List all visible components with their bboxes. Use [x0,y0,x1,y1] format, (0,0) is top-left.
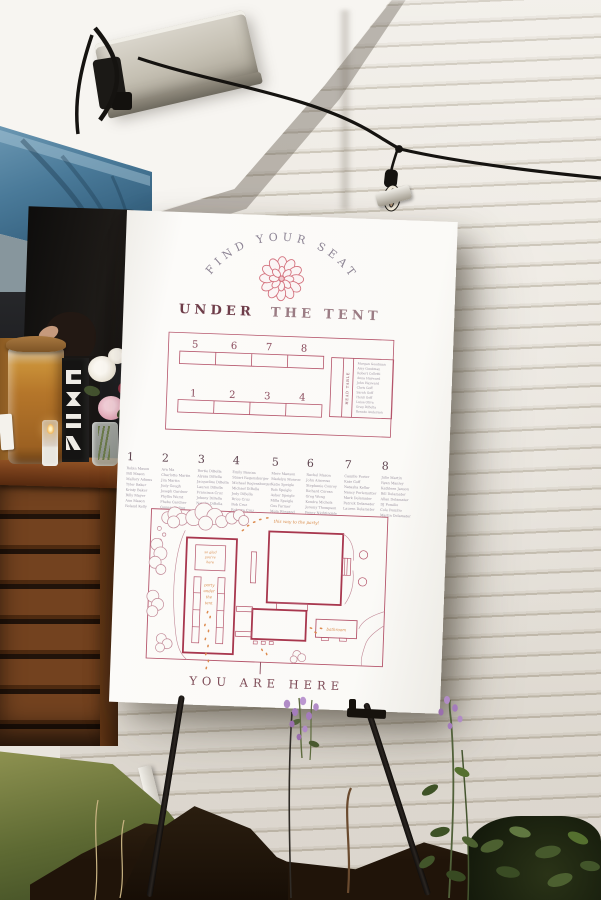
column-number: 1 [127,450,134,463]
map-paths [338,534,387,667]
column-names: Camille PorterKate GoffNatasha KellarNan… [343,474,377,512]
subtitle-word1: UNDER [179,302,256,320]
column-number: 8 [382,460,389,473]
column-names: Mere MansonMadelyn MonroeKatie SpeigleRo… [269,471,301,514]
column-names: Ava MaCharlotte MartinJim MartinJudy Gou… [159,467,191,510]
subtitle-rest: THE TENT [270,305,382,324]
bush [468,816,601,900]
outdoor-wedding-scene: FIND YOUR SEAT UNDER TH [0,0,601,900]
seating-column-6: 6 Rachel MasonJohn AmorosoStephanie Conr… [304,457,339,516]
footer-label: YOU ARE HERE [188,674,344,694]
sign-artwork: FIND YOUR SEAT UNDER TH [109,210,458,714]
lawn-edge [171,530,191,659]
table-1: 1 [190,388,197,399]
table-4: 4 [299,392,306,403]
seating-column-8: 8 Julie MartinRyan ManleyKathleen Janson… [379,459,413,518]
bathroom-label: bathroom [326,627,346,633]
seating-column-5: 5 Mere MansonMadelyn MonroeKatie Speigle… [269,455,301,514]
tent-head-script: so gladyou'rehere [204,550,218,564]
table-3: 3 [264,391,271,402]
map-buildings [235,530,368,648]
column-number: 6 [307,457,314,470]
junction-box [112,92,132,110]
site-map: so gladyou'rehere partyunderthetent [144,501,388,679]
head-table-label: HEAD TABLE [345,372,350,405]
column-names: Robin MasonBill MasonMallory AdamsTyler … [124,466,153,509]
map-trees [145,501,312,663]
house-corner-shadow [338,10,352,210]
head-table-names: Morgan GoodmanAmy GoodmanRobert Colletti… [355,362,386,415]
path-script-label: this way to the party! [274,519,320,526]
dispenser-lid [6,336,66,352]
seating-columns: 1 Robin MasonBill MasonMallory AdamsTyle… [124,450,413,518]
column-number: 5 [272,455,279,468]
easel-bracket-lip [349,699,356,713]
seating-column-1: 1 Robin MasonBill MasonMallory AdamsTyle… [124,450,153,509]
table-numbers-bottom: 1 2 3 4 [190,388,306,403]
drink-label-tag [0,414,14,451]
table-7: 7 [266,342,273,353]
column-number: 2 [162,451,169,464]
seating-chart-sign: FIND YOUR SEAT UNDER TH [109,210,458,714]
column-names: Emily BancasStuart RegensburgerMichael R… [230,470,272,513]
table-8: 8 [301,343,308,354]
subtitle: UNDER THE TENT [179,302,383,324]
tent-aisle-script: partyunderthetent [203,582,215,605]
seating-column-3: 3 Bertie DiBellaAlyssa DiBellaJacqueline… [195,453,230,512]
seating-column-4: 4 Emily BancasStuart RegensburgerMichael… [230,454,273,513]
column-number: 3 [198,453,205,466]
seating-column-2: 2 Ava MaCharlotte MartinJim MartinJudy G… [159,451,192,510]
box-glyph [66,392,81,406]
column-number: 4 [233,454,240,467]
patterned-box [62,358,89,462]
column-names: Rachel MasonJohn AmorosoStephanie Conroy… [304,473,338,516]
rosette-icon [259,256,305,302]
box-glyph [66,370,81,384]
box-glyph [66,414,81,428]
seating-column-7: 7 Camille PorterKate GoffNatasha KellarN… [343,458,378,512]
column-names: Julie MartinRyan ManleyKathleen JansonBi… [379,475,413,518]
candle-flame [47,424,54,434]
box-glyph [66,436,81,450]
table-5: 5 [192,339,199,350]
column-number: 7 [345,458,352,471]
flower-stems [98,426,110,460]
table-2: 2 [229,390,236,401]
table-6: 6 [231,341,238,352]
